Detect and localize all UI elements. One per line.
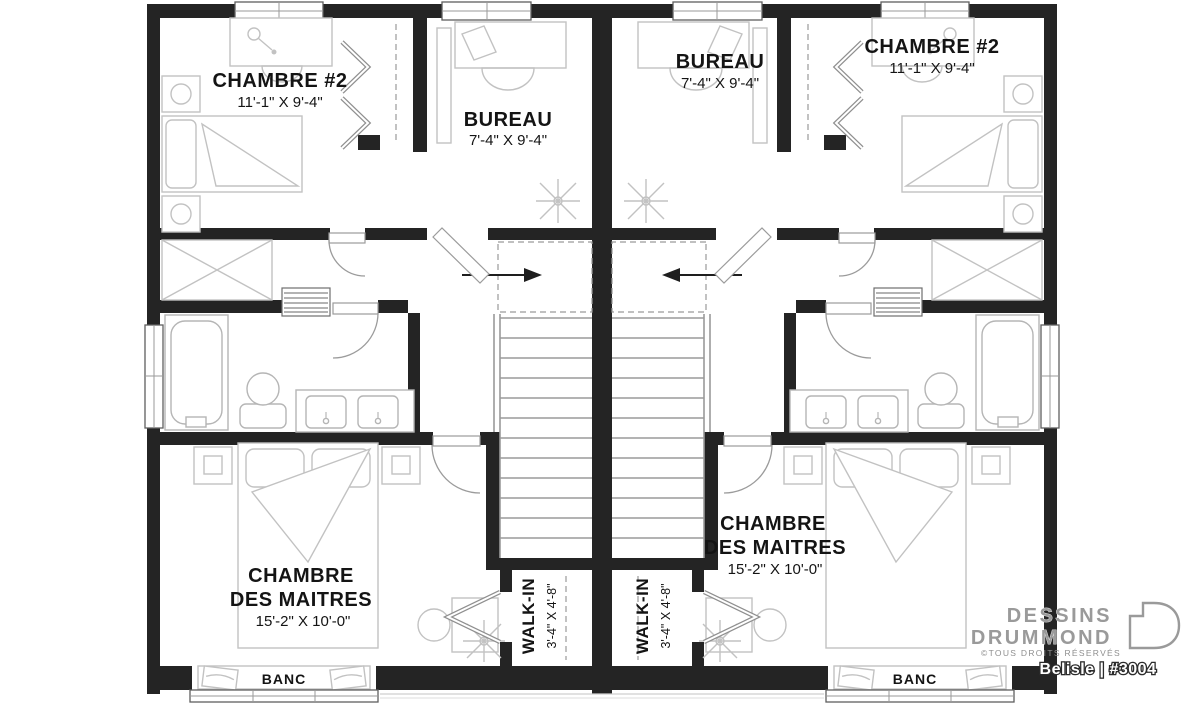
bureau-chair [482,68,534,90]
nightstand [162,76,200,112]
label-bureau-left: BUREAU [464,109,553,131]
bench-pillow [330,666,366,690]
label-master-left-1: CHAMBRE [248,565,354,587]
nightstand [382,447,420,484]
nightstand [162,196,200,232]
label-master-right-2: DES MAITRES [704,537,846,559]
window-top-bureau [442,2,531,20]
dim-bureau-left: 7'-4" X 9'-4" [469,132,547,149]
label-master-left-2: DES MAITRES [230,589,372,611]
drummond-d-logo-icon [1130,603,1179,648]
label-walkin-right: WALK-IN [633,578,652,654]
vanity-double-sink [296,390,414,432]
floor-plan-page: CHAMBRE #2 11'-1" X 9'-4" BUREAU 7'-4" X… [0,0,1200,711]
plant-icon [536,179,580,223]
dim-master-left: 15'-2" X 10'-0" [256,613,351,630]
label-master-right-1: CHAMBRE [720,513,826,535]
bedroom2-furniture [162,18,396,232]
label-walkin-left: WALK-IN [519,578,538,654]
nightstand [194,447,232,484]
label-chambre2-right: CHAMBRE #2 [864,36,999,58]
floor-plan-drawing: CHAMBRE #2 11'-1" X 9'-4" BUREAU 7'-4" X… [0,0,1200,711]
stair-direction-arrow [524,268,542,282]
window-left-bathroom [145,325,163,428]
label-banc-left: BANC [262,671,306,687]
bureau-door-leaf [433,228,489,283]
bench-pillow [202,666,238,690]
dim-walkin-right: 3'-4" X 4'-8" [659,583,673,648]
bed-pillow [166,120,196,188]
chair [418,609,450,641]
dim-bureau-right: 7'-4" X 9'-4" [681,75,759,92]
dim-chambre2-right: 11'-1" X 9'-4" [889,60,974,77]
logo-drummond: DRUMMOND [971,627,1112,649]
master-door-leaf [433,436,480,446]
logo-dessins: DESSINS [1007,605,1112,627]
bookshelf [437,28,451,143]
linen-shelves [282,288,330,316]
bathroom-door-leaf [333,303,378,314]
bedroom-door-leaf [329,233,365,243]
plan-model-number: Belisle | #3004 [1040,661,1157,678]
dim-chambre2-left: 11'-1" X 9'-4" [237,94,322,111]
logo-rights: ©TOUS DROITS RÉSERVÉS [981,648,1121,658]
label-banc-right: BANC [893,671,937,687]
desk [230,18,332,66]
staircase [462,242,592,558]
label-bureau-right: BUREAU [676,51,765,73]
label-chambre2-left: CHAMBRE #2 [212,70,347,92]
bureau-furniture [433,22,580,283]
wardrobe-closet [162,240,272,300]
bay-window [190,690,378,702]
dim-walkin-left: 3'-4" X 4'-8" [545,583,559,648]
bifold-closet-doors [342,42,368,148]
tub-faucet [186,417,206,427]
toilet [240,373,286,428]
dim-master-right: 15'-2" X 10'-0" [728,561,823,578]
bathroom [165,315,414,432]
